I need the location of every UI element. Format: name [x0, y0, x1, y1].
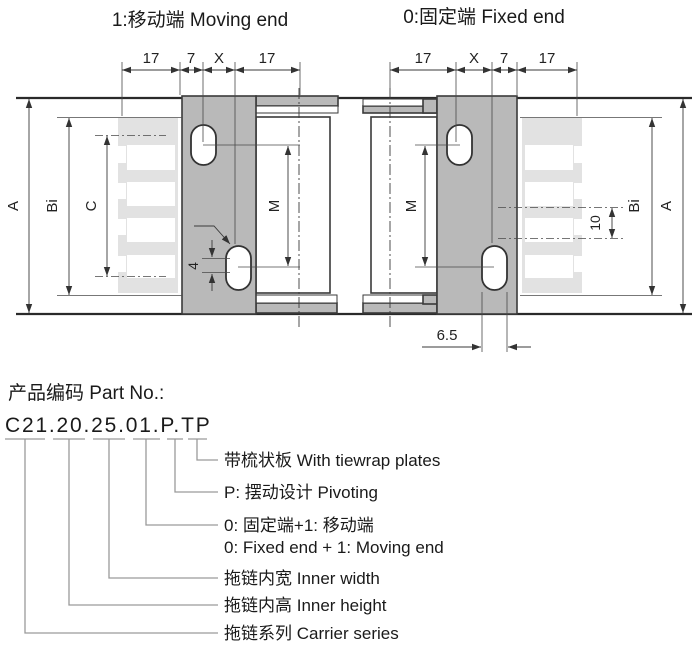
- label-6-5-slot: 6.5: [437, 327, 458, 344]
- dim-A-left: A: [5, 99, 29, 313]
- code-leader-lines: [25, 439, 218, 633]
- dim-17-right-inner: 17: [415, 50, 432, 67]
- dim-x-right: X: [469, 50, 479, 67]
- dim-17-left-outer: 17: [143, 50, 160, 67]
- label-C-left: C: [83, 200, 100, 211]
- explanation-end-type-cn: 0: 固定端+1: 移动端: [224, 516, 374, 535]
- label-Bi-right: Bi: [626, 199, 643, 212]
- label-M-left: M: [266, 200, 283, 213]
- dim-17-left-inner: 17: [259, 50, 276, 67]
- dim-A-right: A: [658, 99, 683, 313]
- part-number-section: 产品编码 Part No.: C21.20.25.01.P.TP 带梳状板 Wi…: [5, 382, 444, 643]
- fixed-end-title: 0:固定端 Fixed end: [403, 6, 565, 28]
- dim-7-left: 7: [187, 50, 195, 67]
- slot-hole-bottom-left: [226, 246, 251, 290]
- explanation-inner-height: 拖链内高 Inner height: [224, 596, 387, 615]
- technical-drawing-page: 1:移动端 Moving end: [0, 0, 700, 663]
- label-A-right: A: [658, 201, 675, 211]
- explanation-tiewrap: 带梳状板 With tiewrap plates: [224, 451, 440, 470]
- label-10-pitch: 10: [587, 215, 603, 231]
- fixed-end-assembly: 0:固定端 Fixed end: [363, 6, 683, 352]
- label-A-left: A: [5, 201, 22, 211]
- code-explanations: 带梳状板 With tiewrap plates P: 摆动设计 Pivotin…: [224, 451, 444, 643]
- part-no-code: C21.20.25.01.P.TP: [5, 414, 212, 437]
- explanation-pivoting: P: 摆动设计 Pivoting: [224, 483, 378, 502]
- explanation-end-type-en: 0: Fixed end + 1: Moving end: [224, 538, 444, 557]
- fixed-end-bracket: [363, 88, 517, 330]
- label-4-offset: 4: [185, 262, 201, 270]
- label-M-right: M: [403, 200, 420, 213]
- dim-17-right-outer: 17: [539, 50, 556, 67]
- carrier-dimension-diagram: 1:移动端 Moving end: [0, 0, 700, 663]
- dim-x-left: X: [214, 50, 224, 67]
- tiewrap-plate-left: [118, 118, 178, 293]
- moving-end-assembly: 1:移动端 Moving end: [5, 9, 338, 330]
- label-Bi-left: Bi: [44, 199, 61, 212]
- explanation-inner-width: 拖链内宽 Inner width: [224, 569, 380, 588]
- chain-profile-lines: [16, 98, 692, 314]
- moving-end-bracket: [182, 88, 338, 330]
- moving-end-title: 1:移动端 Moving end: [112, 9, 288, 31]
- dim-7-right: 7: [500, 50, 508, 67]
- explanation-carrier-series: 拖链系列 Carrier series: [224, 624, 399, 643]
- part-no-heading: 产品编码 Part No.:: [8, 382, 164, 404]
- tiewrap-plate-right: [522, 118, 582, 293]
- slot-hole-bottom-right: [482, 246, 507, 290]
